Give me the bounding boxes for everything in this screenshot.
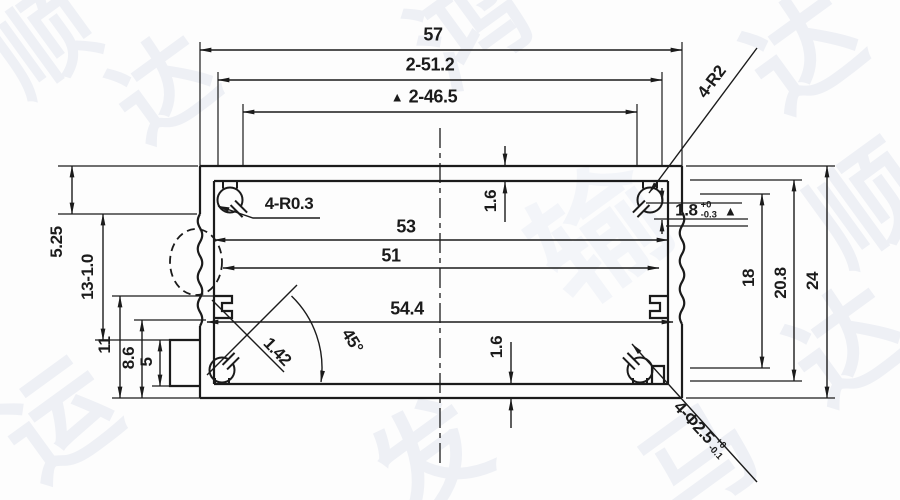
drawing-stage: 顺 达 鸿 达 输 顺 达 运 发 马 bbox=[0, 0, 900, 500]
profile-outline bbox=[170, 166, 684, 398]
dim-inner-width-upper: 53 bbox=[396, 217, 415, 238]
tolerance-stack: +0 -0.3 bbox=[701, 201, 717, 222]
dim-boss-slot-width: 1.8 +0 -0.3 ▲ bbox=[675, 201, 737, 222]
dim-left-groove-height: 5 bbox=[137, 357, 157, 366]
dim-right-cavity-height: 20.8 bbox=[771, 267, 791, 299]
dim-top-wall-thickness: 1.6 bbox=[481, 190, 501, 212]
dim-left-lip-height: 5.25 bbox=[47, 226, 67, 258]
key-dimension-triangle-icon: ▲ bbox=[391, 90, 404, 105]
dim-slot-width: 54.4 bbox=[390, 299, 423, 320]
dim-left-lower-height: 11 bbox=[95, 336, 115, 353]
note-fillet-radius: 4-R0.3 bbox=[265, 194, 314, 214]
screw-boss-top-right bbox=[633, 181, 663, 217]
left-external-groove bbox=[170, 340, 200, 386]
left-wall-serration bbox=[198, 214, 203, 326]
right-card-guide bbox=[650, 296, 668, 318]
thickness-arrows bbox=[505, 146, 662, 428]
dim-boss-span-outer: 2-51.2 bbox=[406, 55, 455, 76]
dim-inner-width-lower: 51 bbox=[381, 246, 400, 267]
screw-boss-top-left bbox=[218, 181, 248, 217]
dim-left-wall-section: 13-1.0 bbox=[78, 254, 98, 300]
dim-bottom-wall-thickness: 1.6 bbox=[487, 336, 507, 358]
leader-4-r2 bbox=[649, 48, 757, 193]
screw-boss-bottom-right bbox=[623, 353, 653, 384]
dim-overall-height: 24 bbox=[803, 272, 823, 290]
dim-boss-span-inner: ▲ 2-46.5 bbox=[391, 87, 458, 108]
key-dimension-triangle-icon: ▲ bbox=[724, 204, 737, 219]
left-card-guide bbox=[214, 296, 232, 318]
angle-arc-45 bbox=[292, 296, 322, 382]
dim-right-inner-height: 18 bbox=[739, 269, 759, 287]
right-wall-serration bbox=[680, 212, 685, 324]
dim-left-groove-bottom: 8.6 bbox=[119, 347, 139, 369]
dim-overall-width: 57 bbox=[423, 25, 442, 46]
